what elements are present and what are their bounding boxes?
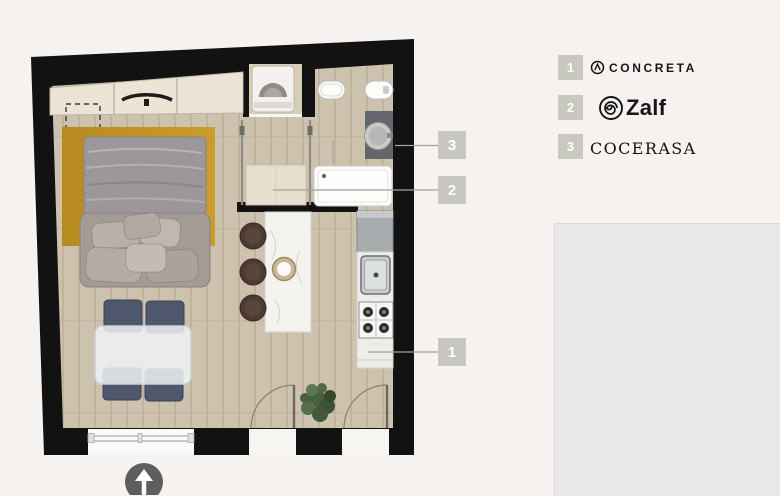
legend-box-1: 1 bbox=[558, 55, 583, 80]
page: 1 2 3 1 2 3 CONCRETA Zalf COCERASA bbox=[0, 0, 780, 495]
shower-tray bbox=[314, 166, 392, 206]
floor-plan bbox=[0, 0, 500, 495]
content-card bbox=[554, 223, 780, 496]
kitchen-island bbox=[265, 212, 311, 332]
spiral-icon bbox=[598, 95, 624, 121]
north-arrow-icon bbox=[125, 463, 163, 495]
callout-box-1: 1 bbox=[438, 338, 466, 366]
callout-box-2: 2 bbox=[438, 176, 466, 204]
circle-lambda-icon bbox=[590, 60, 605, 75]
hob bbox=[359, 302, 393, 338]
window bbox=[88, 429, 194, 455]
brand-concreta: CONCRETA bbox=[590, 60, 697, 75]
legend-box-3: 3 bbox=[558, 134, 583, 159]
legend-box-2: 2 bbox=[558, 95, 583, 120]
brand-zalf: Zalf bbox=[598, 95, 666, 121]
brand-cocerasa-label: COCERASA bbox=[590, 139, 697, 158]
kitchen-run bbox=[357, 211, 393, 368]
brand-concreta-label: CONCRETA bbox=[609, 61, 697, 75]
brand-zalf-label: Zalf bbox=[626, 95, 666, 121]
sofa-bed bbox=[80, 137, 210, 287]
laundry-niche bbox=[249, 64, 302, 117]
brand-cocerasa: COCERASA bbox=[590, 139, 697, 158]
bar-stools bbox=[240, 223, 266, 321]
callout-box-3: 3 bbox=[438, 131, 466, 159]
dining-table bbox=[95, 326, 191, 384]
